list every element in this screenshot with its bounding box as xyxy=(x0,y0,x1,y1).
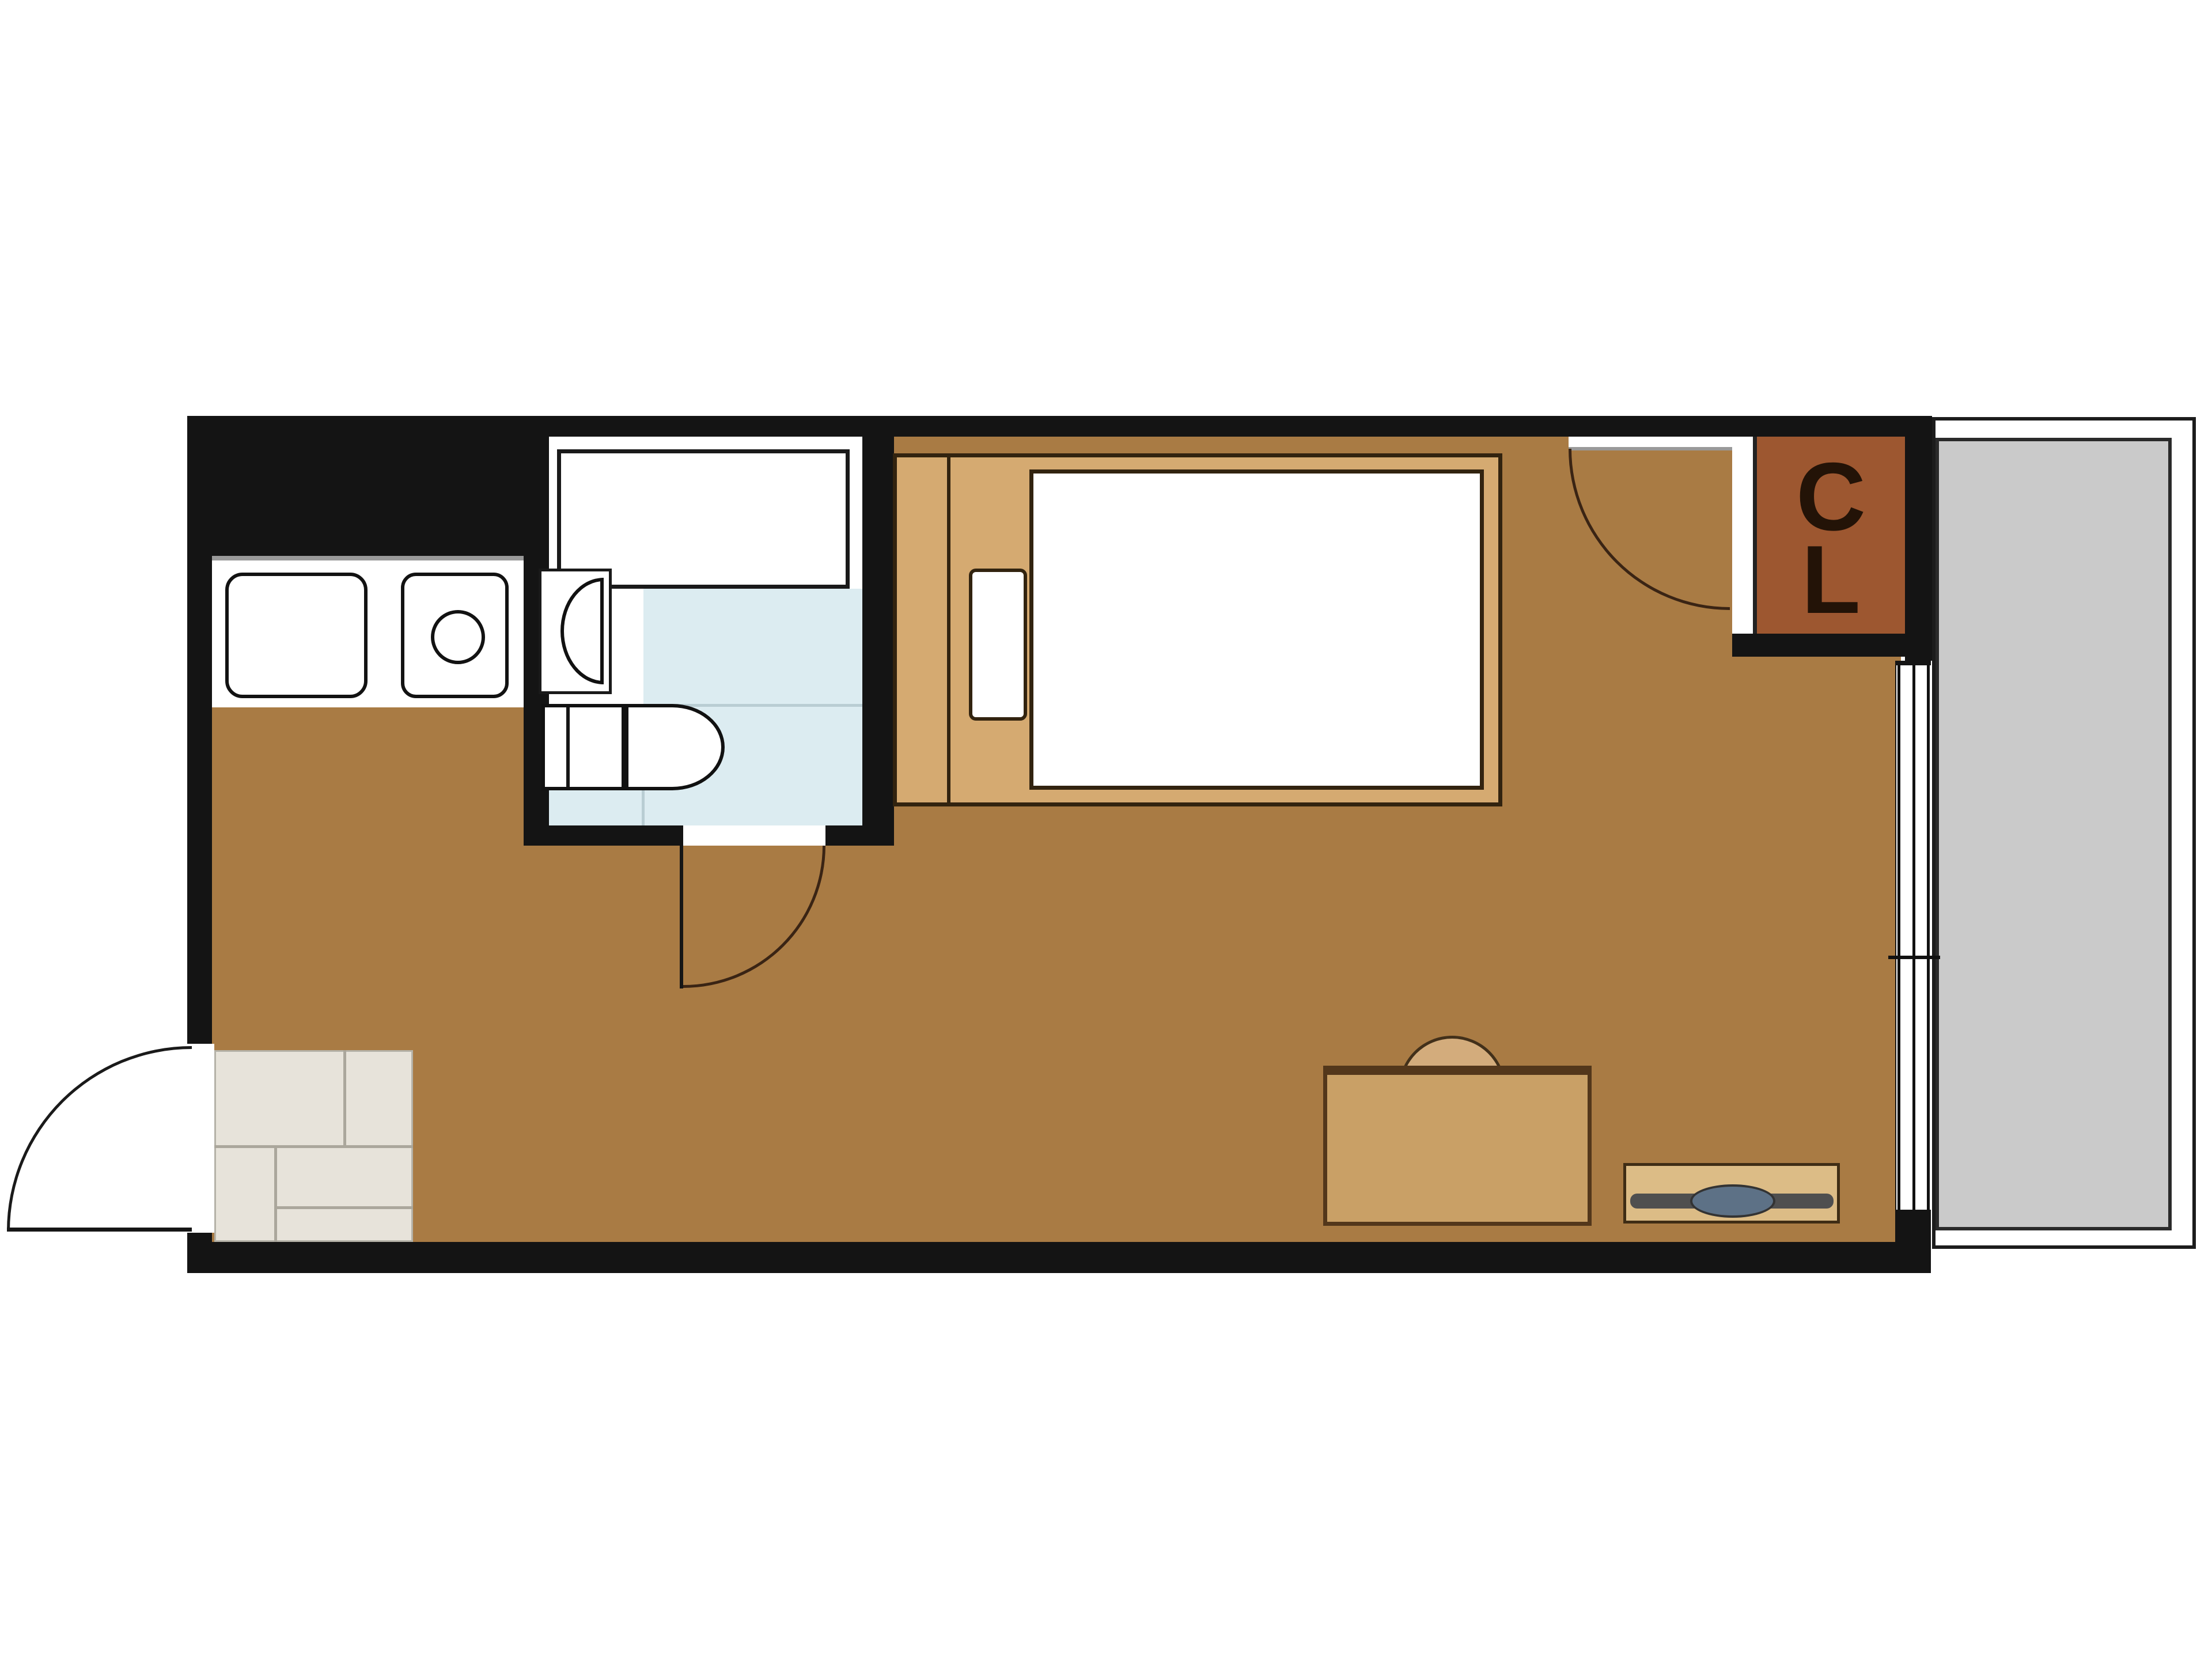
genkan-tile-line-v2 xyxy=(274,1145,277,1242)
balcony xyxy=(1935,438,2172,1230)
bed-mattress xyxy=(1029,469,1484,790)
toilet-tank xyxy=(541,704,625,790)
bathtub xyxy=(557,449,850,589)
toilet-bowl xyxy=(625,704,725,790)
sliding-window-line-left xyxy=(1897,665,1900,1210)
toilet-tank-line xyxy=(566,707,570,787)
closet: C L xyxy=(1757,437,1905,634)
bed-headboard-line xyxy=(947,455,950,805)
closet-door-gap xyxy=(1732,437,1753,634)
top-wall xyxy=(187,416,1932,437)
bath-main-door-gap xyxy=(683,825,825,846)
tv-screen-icon xyxy=(1690,1184,1775,1218)
closet-wall-bottom xyxy=(1732,634,1932,657)
bathroom-wall-right xyxy=(862,416,894,846)
sliding-window-tick xyxy=(1888,956,1940,959)
floor-plan: C L xyxy=(0,0,2212,1659)
sliding-window-line-mid xyxy=(1912,665,1915,1210)
genkan-tile-line-v1 xyxy=(343,1050,346,1148)
desk xyxy=(1323,1066,1592,1226)
entrance-door-arc xyxy=(7,1046,192,1231)
kitchen-sink xyxy=(225,573,368,698)
right-wall-upper xyxy=(1905,416,1932,661)
genkan-tile-line-h2 xyxy=(274,1206,413,1209)
bottom-wall xyxy=(187,1242,1931,1273)
sliding-window-line-right xyxy=(1927,665,1930,1210)
kitchen-dead-space xyxy=(187,416,524,556)
closet-label-line2: L xyxy=(1801,538,1861,621)
closet-left-line xyxy=(1753,437,1757,634)
bed-pillow xyxy=(969,569,1027,721)
genkan-tile-line-h1 xyxy=(214,1145,413,1148)
stove-burner-icon xyxy=(431,610,485,664)
room-door-gap xyxy=(1569,437,1732,447)
